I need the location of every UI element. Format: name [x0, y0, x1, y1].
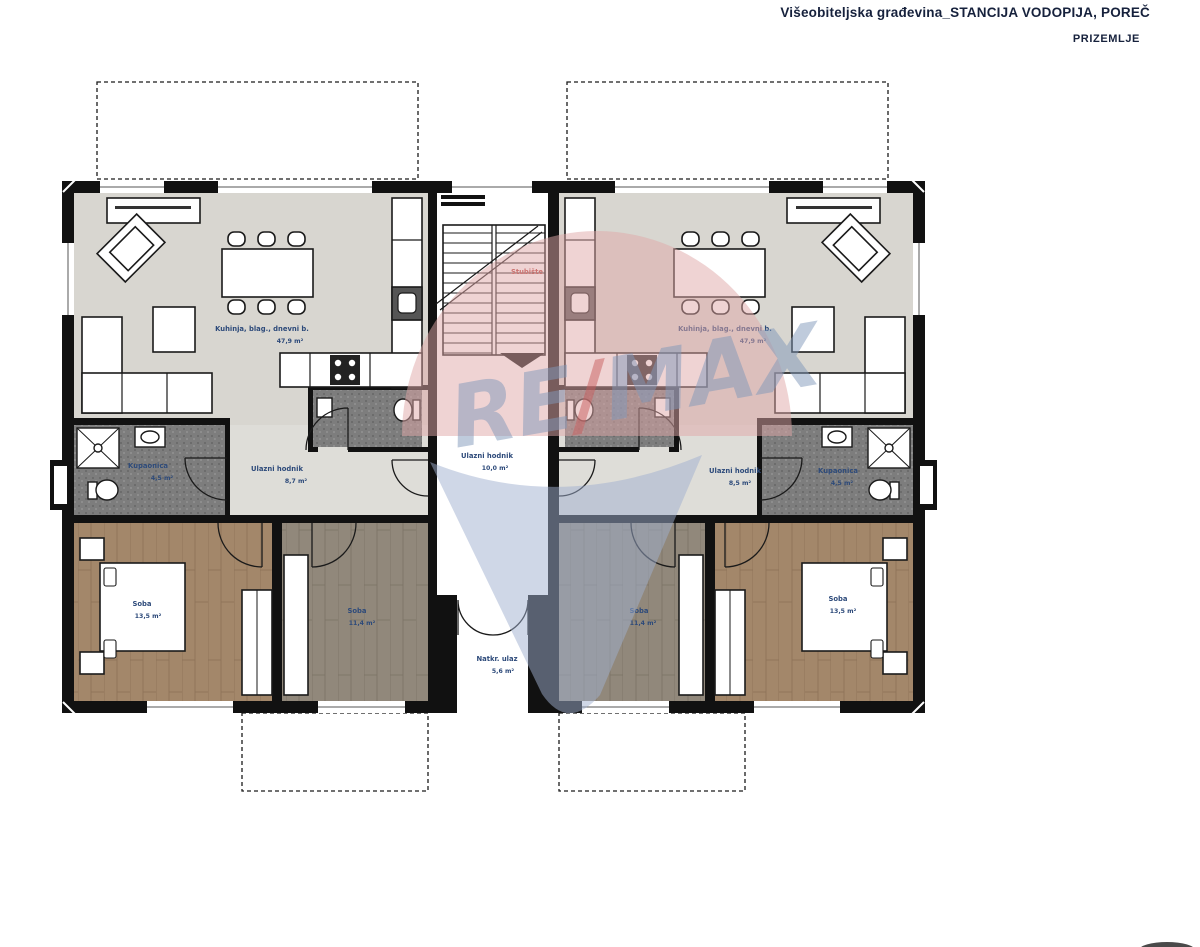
kitchen-sink: [398, 293, 416, 313]
room-label: Natkr. ulaz: [476, 655, 517, 663]
wardrobe: [284, 555, 308, 695]
dining-chair: [258, 300, 275, 314]
tv-cabinet: [107, 198, 200, 223]
terrace-outline-bottom-right: [559, 713, 745, 791]
room-label: Soba: [828, 595, 847, 603]
room-area: 13,5 m²: [830, 608, 857, 615]
dining-chair: [228, 232, 245, 246]
dining-chair: [288, 300, 305, 314]
room-area: 10,0 m²: [482, 465, 509, 472]
room-area: 4,5 m²: [151, 475, 174, 482]
dining-chair: [228, 300, 245, 314]
floor-plan-drawing: Kuhinja, blag., dnevni b. 47,9 m² Ulazni…: [0, 0, 1200, 947]
toilet: [96, 480, 118, 500]
room-label: Ulazni hodnik: [709, 467, 761, 475]
room-label: Soba: [347, 607, 366, 615]
room-area: 5,6 m²: [492, 668, 515, 675]
room-area: 47,9 m²: [277, 338, 304, 345]
unit-a-geometry: [50, 180, 428, 714]
corner-smudge: [1139, 942, 1195, 947]
room-label: Kupaonica: [818, 467, 858, 475]
nightstand: [80, 538, 104, 560]
dining-table: [222, 249, 313, 297]
sofa-bottom: [82, 373, 212, 413]
coffee-table: [153, 307, 195, 352]
room-area: 8,5 m²: [729, 480, 752, 487]
terrace-outline-bottom-left: [242, 713, 428, 791]
landing-edge: [441, 202, 485, 206]
room-label: Kupaonica: [128, 462, 168, 470]
room-label: Kuhinja, blag., dnevni b.: [215, 325, 309, 333]
room-area: 11,4 m²: [630, 620, 657, 627]
nightstand: [80, 652, 104, 674]
wc-sink: [317, 398, 332, 417]
pillow: [104, 568, 116, 586]
dining-chair: [258, 232, 275, 246]
room-area: 8,7 m²: [285, 478, 308, 485]
room-area: 13,5 m²: [135, 613, 162, 620]
dining-chair: [288, 232, 305, 246]
cooktop: [330, 355, 360, 385]
wordmark-re: RE: [442, 348, 582, 468]
room-label: Ulazni hodnik: [251, 465, 303, 473]
pillow: [104, 640, 116, 658]
roof-outline-top-right: [567, 82, 888, 179]
landing-edge: [441, 195, 485, 199]
floor-plan-page: Višeobiteljska građevina_STANCIJA VODOPI…: [0, 0, 1200, 947]
room-label: Soba: [132, 600, 151, 608]
wall-stub: [50, 460, 74, 510]
room-area: 4,5 m²: [831, 480, 854, 487]
room-area: 11,4 m²: [349, 620, 376, 627]
roof-outline-top-left: [97, 82, 418, 179]
